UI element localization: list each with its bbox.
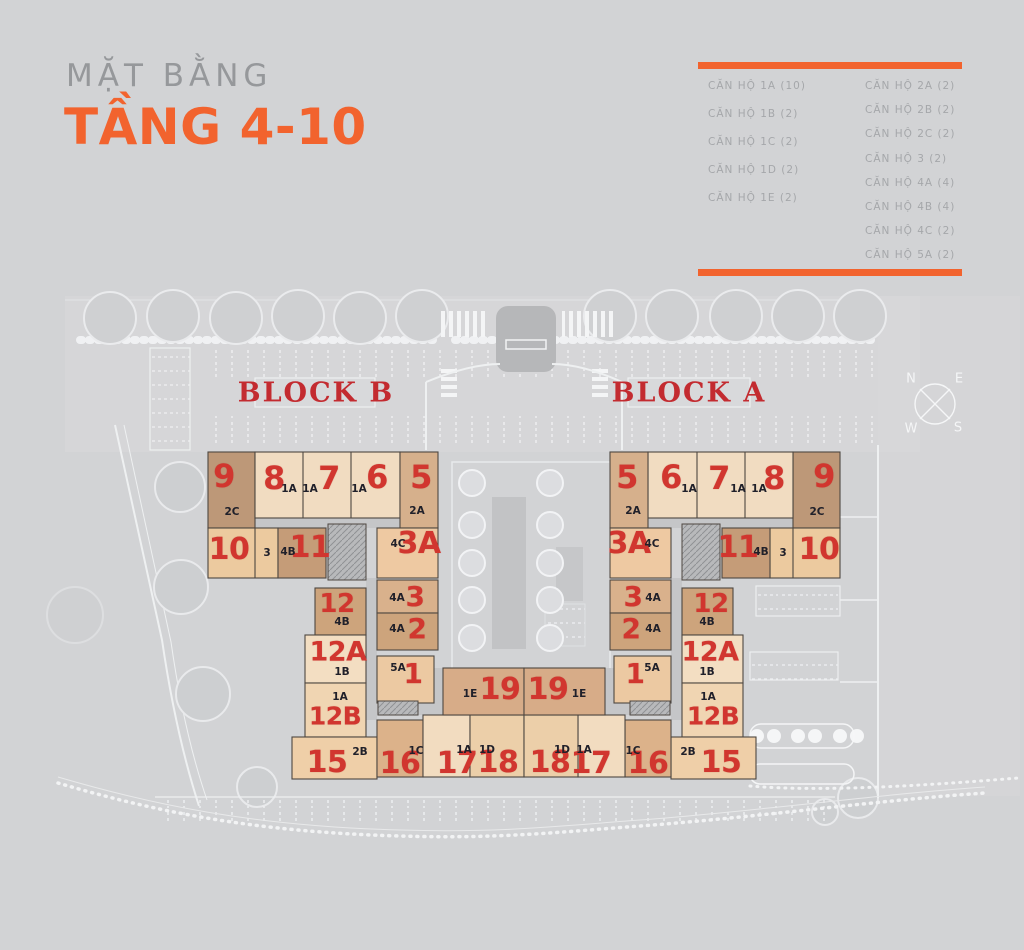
unit-type-label: 1B [699,667,714,678]
unit-type-label: 1D [479,745,495,756]
unit-number: 12 [693,591,728,617]
compass-e: E [955,372,963,387]
unit-type-label: 1C [408,746,423,757]
unit-number: 9 [813,460,835,492]
unit-number: 2 [622,615,641,643]
unit-type-label: 4B [334,617,349,628]
unit-type-label: 1A [456,745,471,756]
unit-number: 6 [366,461,388,493]
unit-number: 12 [319,591,354,617]
unit-number: 11 [290,533,331,563]
unit-type-label: 1D [554,745,570,756]
unit-type-label: 4A [645,593,660,604]
unit-type-label: 4B [699,617,714,628]
unit-type-label: 2A [409,506,424,517]
compass-n: N [906,372,916,387]
crosswalk [437,311,489,337]
unit-number: 3 [406,583,425,611]
unit-number: 6 [660,461,682,493]
unit-number: 3 [624,583,643,611]
unit-type-label: 3 [779,548,786,559]
unit-number: 1 [626,660,645,688]
unit-type-label: 4A [645,624,660,635]
unit-type-label: 1A [281,484,296,495]
unit-number: 10 [209,535,250,565]
unit-number: 5 [616,461,638,493]
unit-number: 7 [708,462,730,494]
unit-number: 19 [480,675,521,705]
unit-type-label: 1A [332,692,347,703]
unit-type-label: 4B [280,547,295,558]
unit-type-label: 1A [730,484,745,495]
site-plan-graphic [0,0,1024,950]
unit-type-label: 1C [625,746,640,757]
crosswalk [562,311,614,337]
unit-type-label: 4C [390,539,405,550]
unit-number: 15 [307,748,348,778]
unit-type-label: 5A [390,663,405,674]
unit-type-label: 1E [463,689,477,700]
block-b-label: BLOCK B [238,378,395,409]
unit-number: 10 [799,535,840,565]
block-a-label: BLOCK A [612,378,767,409]
unit-number: 9 [213,460,235,492]
unit-type-label: 5A [644,663,659,674]
unit-type-label: 1B [334,667,349,678]
unit-number: 7 [318,462,340,494]
floor-plan-page: MẶT BẰNG TẦNG 4-10 CĂN HỘ 1A (10)CĂN HỘ … [0,0,1024,950]
unit-number: 2 [408,615,427,643]
unit-type-label: 4B [753,547,768,558]
unit-type-label: 4C [644,539,659,550]
unit-number: 12A [682,639,739,666]
unit-type-label: 1A [700,692,715,703]
compass-w: W [905,422,918,437]
unit-type-label: 4A [389,624,404,635]
unit-number: 12B [309,704,361,729]
unit-type-label: 3 [263,548,270,559]
unit-type-label: 2B [680,747,695,758]
unit-number: 15 [701,748,742,778]
unit-type-label: 1A [576,745,591,756]
unit-number: 5 [410,461,432,493]
unit-number: 12A [310,639,367,666]
tree-row-parking [750,729,864,743]
unit-type-label: 1A [302,484,317,495]
unit-type-label: 2B [352,747,367,758]
unit-number: 11 [718,533,759,563]
courtyard [452,462,610,674]
unit-type-label: 1A [351,484,366,495]
unit-type-label: 1A [751,484,766,495]
unit-number: 1 [404,660,423,688]
unit-type-label: 2A [625,506,640,517]
entry-canopy [496,306,556,372]
unit-type-label: 1A [681,484,696,495]
unit-type-label: 4A [389,593,404,604]
unit-number: 12B [687,704,739,729]
unit-number: 19 [528,675,569,705]
unit-type-label: 1E [572,689,586,700]
compass-s: S [954,421,962,436]
unit-type-label: 2C [809,507,824,518]
unit-type-label: 2C [224,507,239,518]
